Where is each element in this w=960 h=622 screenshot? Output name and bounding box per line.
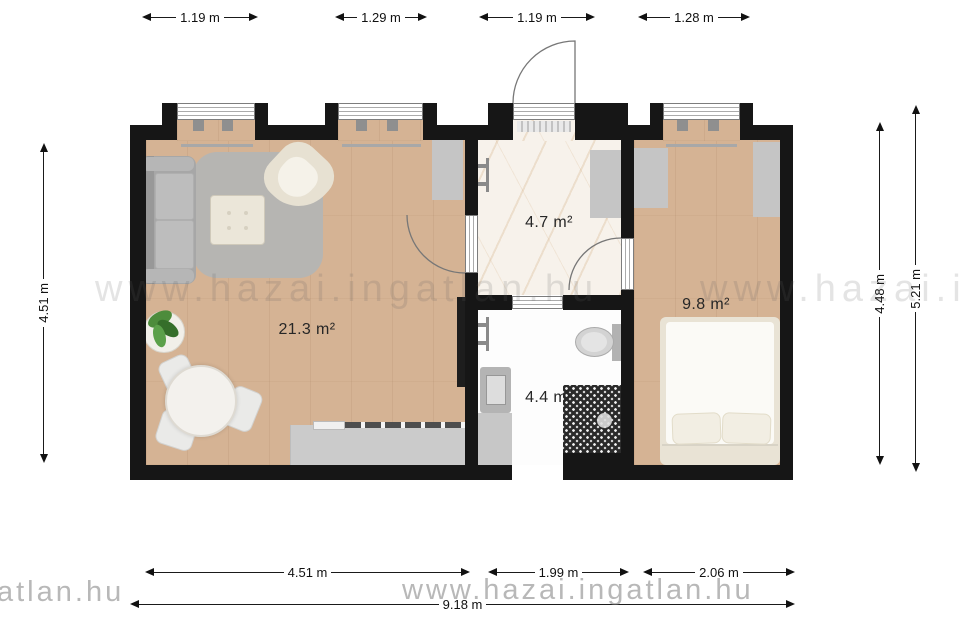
dimension-right-outer: 5.21 m	[908, 105, 923, 472]
window-living-2	[338, 103, 423, 120]
door-frame-hall-bedroom	[621, 238, 634, 290]
sideboard	[290, 425, 469, 468]
window-sill-2	[342, 144, 421, 147]
bath-radiator	[478, 341, 487, 345]
toilet	[575, 327, 614, 357]
dimension-bottom-bedroom: 2.06 m	[643, 565, 795, 579]
bedroom-wardrobe-right	[753, 142, 780, 217]
wall-bay4-jamb-left	[650, 103, 663, 140]
dimension-top-3: 1.19 m	[479, 10, 595, 24]
window-living-1	[177, 103, 255, 120]
window-sill-1	[181, 144, 253, 147]
bed-pillow	[671, 412, 721, 445]
entrance-door-frame	[513, 103, 575, 120]
area-label-bath: 4.4 m²	[509, 389, 589, 407]
wall-bay1-jamb-right	[255, 103, 268, 140]
wall-band-top-right	[753, 125, 793, 140]
bed-pillow	[721, 412, 771, 445]
wall-entrance-jamb-left	[488, 103, 513, 140]
bedroom-wardrobe-left	[634, 148, 668, 208]
dimension-bottom-living: 4.51 m	[145, 565, 470, 579]
dimension-top-4: 1.28 m	[638, 10, 750, 24]
sideboard-item	[313, 421, 345, 430]
wall-bottom-left-segment	[130, 465, 512, 480]
dining-table	[165, 365, 237, 437]
wall-bay1-jamb-left	[162, 103, 177, 140]
dimension-left: 4.51 m	[36, 143, 51, 463]
hall-cabinet	[590, 150, 622, 218]
wall-living-hall-upper	[465, 140, 478, 215]
wall-hall-bedroom-upper	[621, 140, 634, 238]
wall-left	[130, 125, 146, 480]
living-bay1-floor	[177, 120, 255, 141]
dimension-bottom-bath: 1.99 m	[488, 565, 629, 579]
hall-radiator	[478, 164, 487, 168]
wall-band-bay1-bay2	[268, 125, 325, 140]
entrance-threshold	[517, 121, 571, 132]
wall-bay2-jamb-left	[325, 103, 338, 140]
watermark-bottom-left-clipped: atlan.hu	[0, 576, 124, 609]
area-label-bedroom: 9.8 m²	[666, 296, 746, 314]
dimension-right-inner: 4.48 m	[872, 122, 887, 465]
interior-window-hall-bath	[512, 296, 563, 309]
sideboard-rail	[345, 422, 465, 428]
door-frame-living-hall	[465, 215, 478, 273]
dimension-top-2: 1.29 m	[335, 10, 427, 24]
bathroom-sink	[480, 367, 511, 413]
wall-hall-bath-left	[478, 295, 512, 310]
hall-radiator	[478, 182, 487, 186]
tv-panel	[457, 297, 465, 387]
dimension-top-1: 1.19 m	[142, 10, 258, 24]
window-bedroom	[663, 103, 740, 120]
wall-band-entrance-bay4	[621, 125, 650, 140]
window-sill-bedroom	[666, 144, 737, 147]
wall-bottom-right-segment	[626, 465, 793, 480]
bath-radiator	[478, 323, 487, 327]
bedroom-bay-floor	[663, 120, 740, 141]
living-radiator	[432, 140, 463, 200]
ottoman	[210, 195, 265, 245]
dimension-bottom-total: 9.18 m	[130, 597, 795, 611]
area-label-hall: 4.7 m²	[509, 214, 589, 232]
wall-hall-bedroom-lower	[621, 290, 634, 465]
shower-drain	[597, 413, 612, 428]
entrance-door-swing-arc	[513, 41, 575, 103]
wall-hall-bath-right	[563, 295, 622, 310]
wall-top-left-band	[130, 125, 162, 140]
sofa	[140, 156, 196, 284]
wall-right	[780, 140, 793, 480]
wall-band-bay2-entrance	[437, 125, 488, 140]
living-bay2-floor	[338, 120, 423, 141]
wall-bay2-jamb-right	[423, 103, 437, 140]
floor-plan-canvas: 21.3 m² 4.7 m² 4.4 m² 9.8 m² 1.19 m 1.29…	[0, 0, 960, 622]
wall-living-hall-lower	[465, 273, 478, 465]
washing-machine	[478, 413, 512, 465]
area-label-living: 21.3 m²	[257, 321, 357, 339]
wall-bay4-jamb-right	[740, 103, 753, 140]
